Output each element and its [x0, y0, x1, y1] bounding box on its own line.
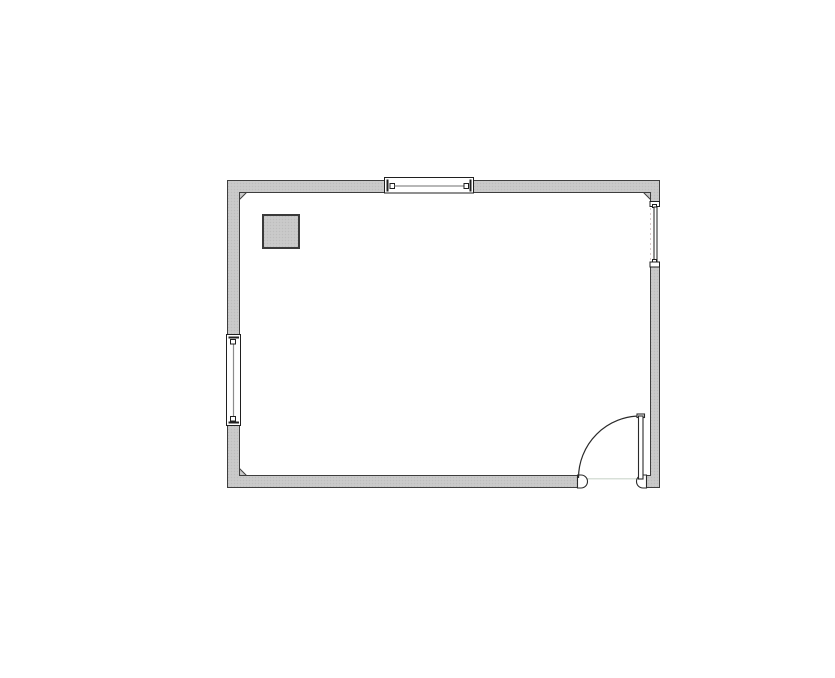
- window-left-bottom-stop: [231, 417, 236, 422]
- floor-plan-page: [0, 0, 835, 678]
- window-top-left-stop: [390, 184, 395, 189]
- door-leaf: [639, 416, 644, 479]
- opening-right: [649, 202, 661, 268]
- window-top-right-stop: [464, 184, 469, 189]
- opening-right-frame: [654, 207, 657, 262]
- window-top-frame: [385, 178, 474, 194]
- column-top-left: [263, 215, 299, 248]
- opening-right-bottom-cap: [650, 262, 660, 267]
- floor-plan-canvas: [0, 0, 835, 678]
- window-left: [227, 335, 241, 426]
- window-left-top-stop: [231, 340, 236, 345]
- room-interior: [240, 193, 651, 476]
- window-top: [385, 178, 474, 194]
